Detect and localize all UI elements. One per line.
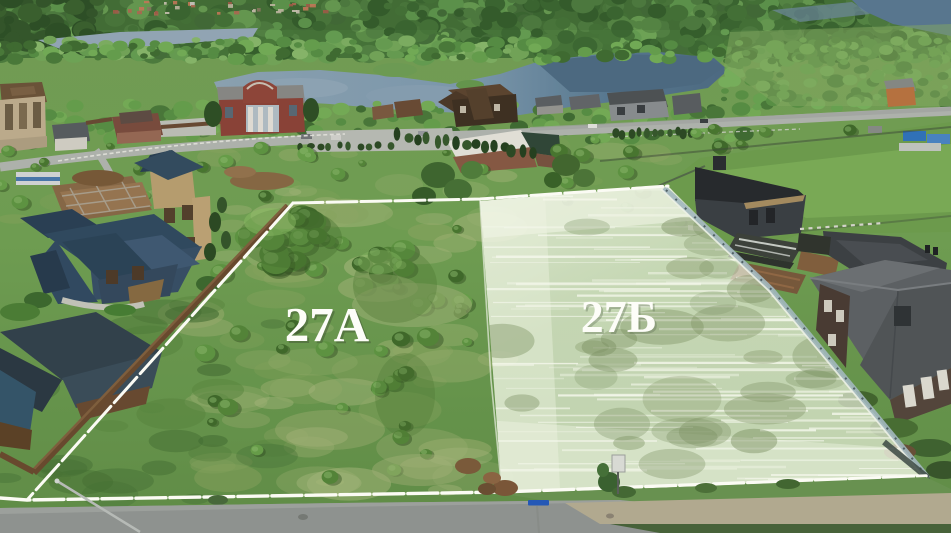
svg-text:27А: 27А <box>285 297 370 352</box>
svg-text:27Б: 27Б <box>581 291 657 342</box>
